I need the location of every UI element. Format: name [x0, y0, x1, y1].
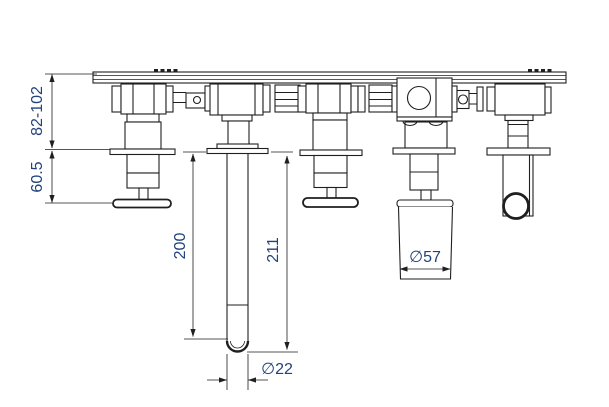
- link-block: [186, 93, 205, 108]
- spout-adapter: [222, 115, 252, 121]
- link-striped-block: [275, 85, 300, 112]
- lever-bar: [113, 200, 171, 208]
- link-striped-block: [369, 85, 392, 112]
- handle-neck: [327, 188, 336, 199]
- stem-housing: [125, 122, 161, 149]
- arrow-left-inward: [248, 377, 256, 382]
- linkage-3-4: [358, 85, 397, 112]
- spout-tip-inner-arc: [231, 341, 245, 348]
- arrow-down: [49, 141, 54, 149]
- valve-body: [495, 84, 545, 115]
- linkage-4-5: [452, 86, 495, 112]
- link-bar-2: [392, 86, 397, 112]
- extension-lines: [45, 74, 110, 150]
- dimension-label: ∅22: [261, 361, 293, 378]
- dimension-label: ∅57: [409, 249, 441, 266]
- spout-stem: [228, 121, 249, 145]
- valve-cap-left: [298, 86, 306, 112]
- stem-housing: [313, 120, 347, 150]
- link-bar-3: [487, 87, 495, 111]
- spout-flange-step: [217, 144, 258, 149]
- dimension-label: 60.5: [29, 161, 46, 192]
- spout-escutcheon: [207, 149, 268, 154]
- link-rods: [469, 94, 477, 105]
- mounting-plate: [93, 69, 566, 83]
- lever-bar: [303, 198, 358, 207]
- adapter: [505, 115, 533, 121]
- handle-neck: [139, 188, 148, 200]
- link-bar: [263, 85, 270, 112]
- dimension-spout-tube-diameter: ∅22: [207, 354, 293, 390]
- technical-drawing-canvas: 82-102 60.5 200 211 ∅57 ∅22: [0, 0, 609, 407]
- dimension-label: 211: [265, 237, 282, 263]
- arrow-up: [190, 154, 195, 162]
- valve-cap-right: [166, 86, 173, 112]
- dimension-spout-upper-length: 200: [172, 152, 228, 339]
- adapter: [313, 113, 347, 120]
- linkage-1-2: [173, 86, 211, 111]
- spout-tube: [227, 154, 248, 342]
- plate-body: [93, 72, 566, 83]
- escutcheon: [393, 148, 455, 154]
- spout-tip-outer-arc: [227, 341, 248, 352]
- arrow-up: [284, 156, 289, 164]
- valve-cap-right: [351, 86, 358, 112]
- escutcheon: [487, 148, 550, 155]
- handle-upper: [314, 156, 347, 174]
- escutcheon: [110, 149, 175, 155]
- extension-lines: [227, 354, 248, 390]
- knob-top-disc: [397, 200, 453, 207]
- arrow-down: [49, 195, 54, 203]
- valve-cap-right: [545, 87, 551, 113]
- arrow-down: [190, 329, 195, 337]
- adapter: [127, 114, 159, 122]
- dimension-spout-total-length: 211: [247, 152, 298, 352]
- escutcheon: [300, 150, 362, 156]
- valve-body: [397, 78, 452, 117]
- dimension-handle-projection: 60.5: [29, 151, 112, 204]
- handle-upper: [127, 155, 159, 174]
- handle-lower: [127, 173, 159, 188]
- arrow-right-inward: [219, 377, 227, 382]
- valve-body: [306, 84, 351, 113]
- fixture-spout: [207, 84, 268, 352]
- linkage-2-3: [263, 85, 300, 112]
- dimension-label: 82-102: [29, 86, 46, 136]
- link-bar-2: [477, 87, 483, 111]
- dimension-mount-depth: 82-102: [29, 74, 110, 150]
- knob-neck: [421, 190, 431, 200]
- dimension-label: 200: [172, 233, 189, 260]
- fixture-handle-left: [110, 84, 175, 208]
- faucet-rough-in-drawing: 82-102 60.5 200 211 ∅57 ∅22: [0, 0, 609, 407]
- arrow-up: [49, 151, 54, 159]
- handle-lower: [314, 173, 347, 188]
- lever-end-circle: [504, 194, 529, 219]
- fixture-handle-right: [487, 84, 551, 219]
- link-rods: [173, 93, 186, 103]
- valve-body: [121, 84, 166, 114]
- valve-cap-left: [112, 86, 121, 112]
- arrow-down: [284, 342, 289, 350]
- link-bar: [358, 86, 365, 112]
- arrow-up: [49, 74, 54, 82]
- fixture-handle-center: [298, 84, 362, 207]
- link-bar: [452, 86, 457, 112]
- body-base: [397, 117, 452, 121]
- extension-lines: [183, 152, 228, 339]
